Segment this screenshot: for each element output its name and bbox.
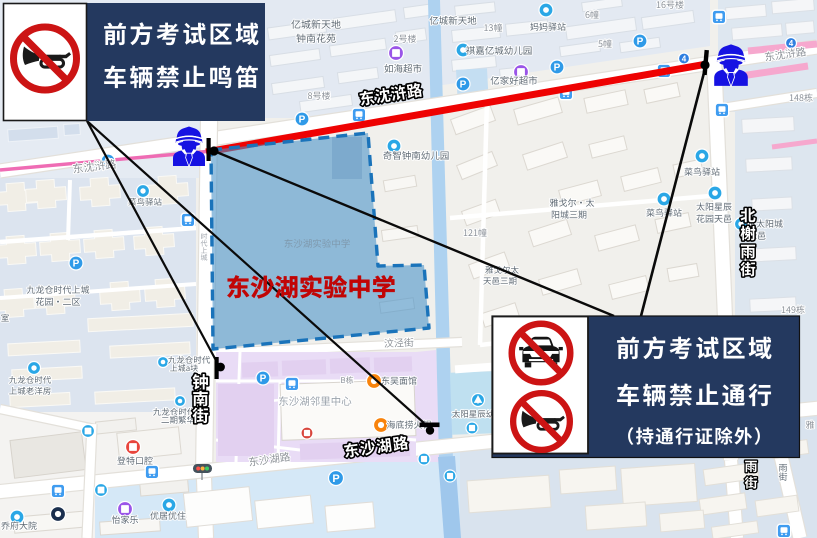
svg-text:P: P	[554, 63, 561, 74]
svg-text:P: P	[73, 259, 80, 270]
svg-text:P: P	[260, 374, 267, 385]
svg-text:4: 4	[682, 55, 687, 64]
svg-text:P: P	[299, 115, 306, 126]
svg-text:P: P	[637, 37, 644, 48]
svg-text:4: 4	[789, 39, 794, 48]
svg-text:P: P	[460, 80, 467, 91]
svg-text:P: P	[332, 473, 339, 485]
